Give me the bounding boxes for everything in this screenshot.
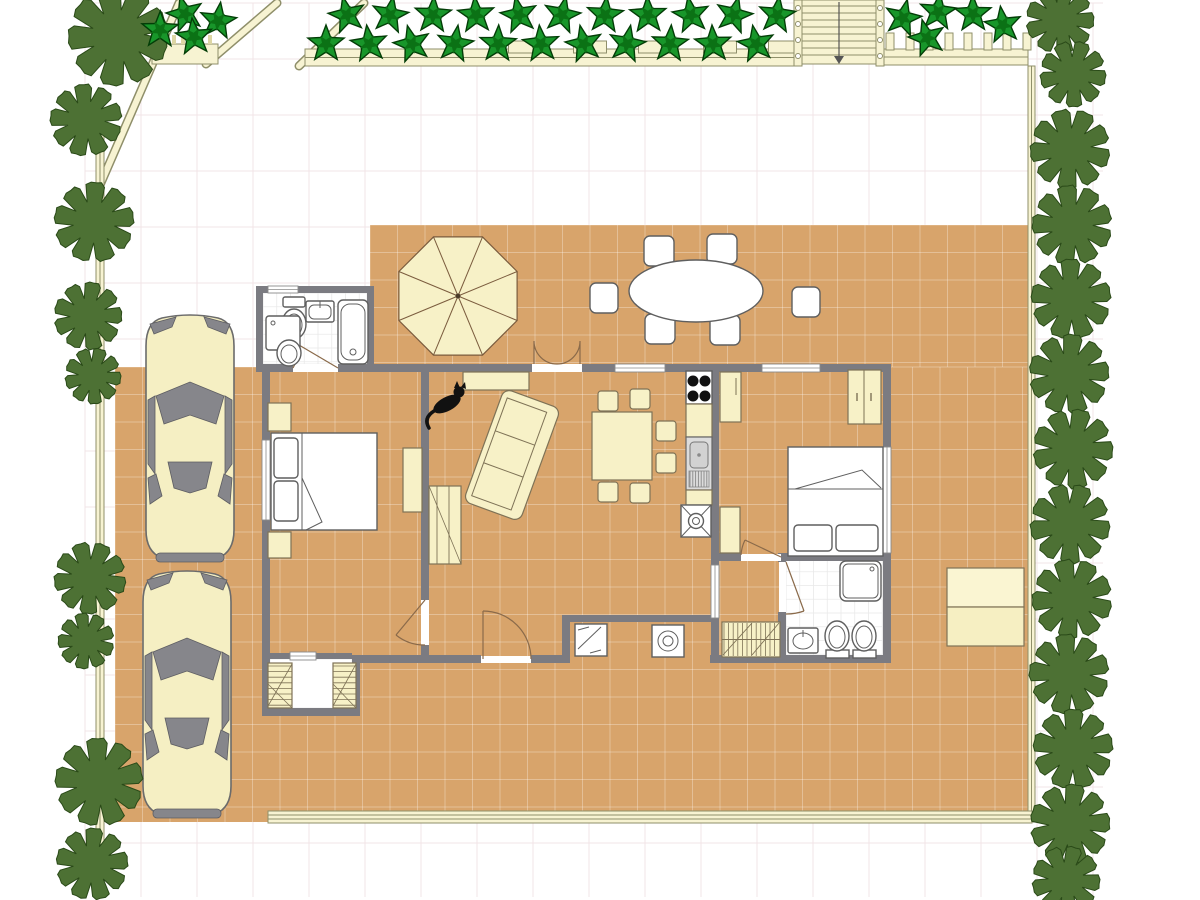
wardrobe-2[interactable] [848, 370, 881, 424]
patio-oval-table[interactable] [629, 260, 763, 322]
wardrobe-1[interactable] [720, 372, 741, 422]
toilet-2 [825, 621, 849, 658]
tree[interactable] [1033, 709, 1113, 788]
kitchen-counter[interactable] [686, 404, 712, 437]
patio-chair[interactable] [792, 287, 820, 317]
dining-chair[interactable] [598, 391, 618, 411]
kitchen-fixtures[interactable] [681, 371, 712, 537]
bidet [277, 340, 301, 366]
window-bedroom2-right [883, 447, 891, 553]
star-plant[interactable] [718, 0, 753, 33]
tree[interactable] [54, 182, 134, 261]
floor-plan-drawing [0, 0, 1200, 900]
nightstand-2[interactable] [268, 532, 291, 558]
cooktop[interactable] [686, 371, 712, 404]
toilet-3 [852, 621, 876, 658]
washbasin [306, 301, 334, 322]
tree[interactable] [1030, 109, 1109, 189]
wall-shelf[interactable] [463, 372, 529, 390]
washing-machine[interactable] [652, 625, 684, 657]
staircase[interactable] [794, 0, 884, 66]
dining-table[interactable] [592, 412, 652, 480]
window-corridor [711, 565, 719, 618]
tree[interactable] [1032, 185, 1111, 265]
dish-drainer [690, 471, 707, 487]
right-fence [1028, 66, 1035, 822]
bookshelf[interactable] [429, 486, 461, 564]
tree[interactable] [56, 828, 128, 900]
garden-table[interactable] [947, 568, 1024, 646]
star-plant[interactable] [887, 0, 922, 36]
kitchen-counter-2[interactable] [686, 490, 712, 505]
star-plant[interactable] [458, 0, 494, 31]
dresser[interactable] [403, 448, 422, 512]
window-alcove [290, 652, 316, 660]
patio-chair[interactable] [644, 236, 674, 266]
kitchen-sink[interactable] [686, 437, 712, 490]
tree[interactable] [1030, 485, 1110, 564]
washbasin-2 [788, 628, 818, 653]
tree[interactable] [50, 84, 122, 156]
bottom-fence [268, 811, 1032, 823]
tree[interactable] [1030, 334, 1109, 414]
window-bedroom1-left [262, 440, 270, 520]
star-plant[interactable] [500, 0, 535, 32]
star-plant[interactable] [760, 0, 796, 32]
star-plant[interactable] [630, 0, 666, 31]
tree[interactable] [58, 613, 113, 669]
dining-chair[interactable] [656, 421, 676, 441]
patio-umbrella[interactable] [399, 237, 517, 355]
car-2[interactable] [143, 571, 231, 818]
tree[interactable] [1031, 259, 1111, 338]
doormat[interactable] [722, 622, 780, 657]
tree[interactable] [55, 282, 122, 350]
patio-chair[interactable] [590, 283, 618, 313]
dining-chair[interactable] [656, 453, 676, 473]
tree[interactable] [1032, 559, 1111, 639]
kitchen-prep-table[interactable] [681, 505, 711, 537]
car-1[interactable] [146, 315, 234, 562]
star-plant[interactable] [373, 0, 409, 32]
tree[interactable] [1033, 409, 1113, 489]
tree[interactable] [1032, 846, 1100, 900]
shower-tray-2 [840, 561, 881, 601]
dishwasher[interactable] [575, 624, 607, 656]
star-plant[interactable] [955, 0, 991, 30]
patio-chair[interactable] [707, 234, 737, 264]
window-bedroom2-top [762, 364, 820, 372]
star-plant[interactable] [588, 0, 624, 31]
cabinet[interactable] [720, 507, 740, 553]
floor-plan-canvas [0, 0, 1200, 900]
bathtub [338, 300, 368, 364]
double-bed-1[interactable] [271, 433, 377, 530]
window-living-1 [615, 364, 665, 372]
window-bathroom1-top [268, 286, 298, 293]
double-bed-2[interactable] [788, 447, 883, 556]
star-plant[interactable] [546, 0, 581, 32]
dining-chair[interactable] [630, 483, 650, 503]
tree[interactable] [1029, 634, 1109, 714]
tree[interactable] [65, 348, 121, 404]
picket-fence [884, 33, 1031, 65]
star-plant[interactable] [672, 0, 708, 32]
dining-chair[interactable] [630, 389, 650, 409]
dining-chair[interactable] [598, 482, 618, 502]
nightstand-1[interactable] [268, 403, 291, 431]
